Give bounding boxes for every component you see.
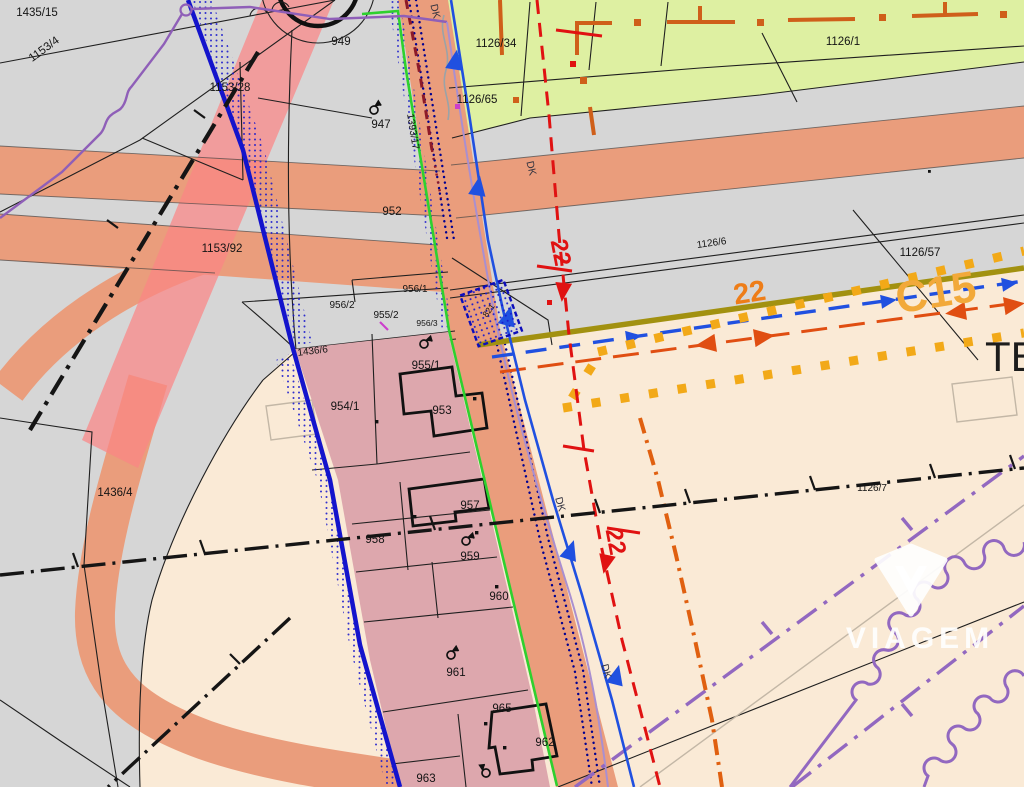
parcel-label-956-3: 956/3 bbox=[416, 318, 438, 328]
parcel-label-954-1: 954/1 bbox=[331, 401, 360, 413]
parcel-label-1435-15: 1435/15 bbox=[16, 7, 58, 19]
zone-label-te: TE bbox=[985, 333, 1024, 380]
parcel-label-953: 953 bbox=[432, 405, 451, 417]
red-line-label-22-upper: 22 bbox=[545, 237, 577, 268]
parcel-label-965: 965 bbox=[492, 703, 511, 715]
parcel-label-957: 957 bbox=[460, 500, 479, 512]
viagem-wordmark: VIAGEM bbox=[846, 622, 994, 655]
parcel-label-1126-1: 1126/1 bbox=[826, 36, 860, 48]
parcel-label-956-2: 956/2 bbox=[329, 300, 354, 311]
parcel-label-960: 960 bbox=[489, 591, 508, 603]
parcel-label-947: 947 bbox=[371, 119, 390, 131]
parcel-label-963: 963 bbox=[416, 773, 435, 785]
parcel-label-955-1: 955/1 bbox=[412, 360, 441, 372]
red-line-label-22-lower: 22 bbox=[600, 526, 632, 557]
parcel-label-1126-57: 1126/57 bbox=[900, 247, 941, 259]
parcel-label-1126-65: 1126/65 bbox=[457, 94, 498, 106]
parcel-label-949: 949 bbox=[331, 36, 350, 48]
parcel-label-962: 962 bbox=[535, 737, 554, 749]
parcel-label-1126-7: 1126/7 bbox=[857, 483, 887, 494]
parcel-label-959: 959 bbox=[460, 551, 479, 563]
parcel-label-952: 952 bbox=[382, 206, 401, 218]
map-viewport[interactable]: 1435/15 1153/4 1153/28 949 947 1393/17 9… bbox=[0, 0, 1024, 787]
parcel-label-1126-34: 1126/34 bbox=[476, 38, 517, 50]
corridor-label-22: 22 bbox=[731, 275, 768, 312]
parcel-label-961: 961 bbox=[446, 667, 465, 679]
parcel-label-958: 958 bbox=[365, 534, 384, 546]
parcel-label-1436-4: 1436/4 bbox=[97, 487, 133, 499]
cadastral-map-canvas[interactable]: 1435/15 1153/4 1153/28 949 947 1393/17 9… bbox=[0, 0, 1024, 787]
parcel-label-1153-28: 1153/28 bbox=[210, 82, 251, 94]
parcel-label-955-2: 955/2 bbox=[373, 310, 398, 321]
parcel-label-956-1: 956/1 bbox=[402, 284, 427, 295]
parcel-label-1153-92: 1153/92 bbox=[202, 243, 243, 255]
